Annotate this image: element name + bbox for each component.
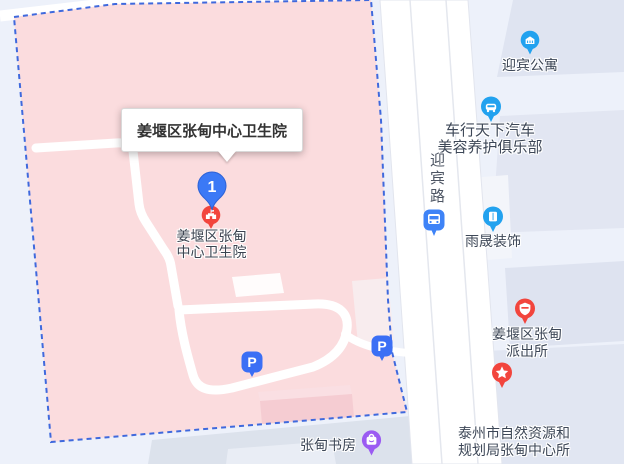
hospital-label-line1: 姜堰区张甸 [159, 228, 264, 244]
parking-pin-1[interactable]: P [241, 351, 263, 380]
bus-wheel-glyph [430, 221, 432, 223]
parking-letter: P [377, 338, 386, 354]
hospital-door-glyph [210, 216, 212, 219]
study-poi-label[interactable]: 张甸书房 [300, 437, 356, 454]
police-poi-icon[interactable] [514, 298, 536, 327]
car-club-poi-label[interactable]: 车行天下汽车 美容养护俱乐部 [437, 122, 543, 156]
place-tooltip[interactable]: 姜堰区张甸中心卫生院 [121, 108, 303, 152]
poi-text: 派出所 [487, 343, 567, 360]
road-name-label: 迎宾路 [426, 152, 447, 206]
car-wheel-glyph [487, 110, 489, 112]
apartment-poi-icon[interactable] [520, 30, 540, 57]
pin-number: 1 [208, 179, 217, 196]
poi-text: 美容养护俱乐部 [437, 139, 543, 156]
poi-text: 泰州市自然资源和 [455, 425, 573, 442]
car-window-glyph [487, 105, 494, 107]
poi-text: 姜堰区张甸 [487, 326, 567, 343]
decoration-poi-icon[interactable] [482, 206, 504, 235]
bureau-poi-icon[interactable] [491, 362, 513, 391]
result-pin-1[interactable]: 1 [197, 171, 227, 211]
decoration-poi-label[interactable]: 雨晟装饰 [465, 233, 521, 250]
hospital-poi-label[interactable]: 姜堰区张甸 中心卫生院 [159, 228, 264, 260]
tooltip-pointer [218, 151, 236, 162]
poi-text: 张甸书房 [300, 437, 356, 454]
police-poi-label[interactable]: 姜堰区张甸 派出所 [487, 326, 567, 360]
car-wheel-glyph [493, 110, 495, 112]
parking-pin-2[interactable]: P [371, 335, 393, 364]
bag-glyph [367, 437, 377, 445]
parcel-building [232, 273, 284, 297]
bus-wheel-glyph [436, 221, 438, 223]
badge-band-glyph [521, 307, 528, 309]
apartment-pillar [532, 41, 533, 43]
car-club-poi-icon[interactable] [480, 96, 502, 125]
poi-text: 规划局张甸中心所 [455, 442, 573, 459]
map-canvas[interactable]: 姜堰区张甸中心卫生院 1 姜堰区张甸 中心卫生院 迎宾路 P P [0, 0, 624, 464]
parking-letter: P [247, 354, 256, 370]
apartment-poi-label[interactable]: 迎宾公寓 [502, 57, 558, 74]
wardrobe-door-glyph [493, 213, 494, 220]
bus-stop-icon[interactable] [423, 209, 445, 239]
apartment-pillar [530, 41, 531, 43]
apartment-pillar [527, 41, 528, 43]
study-poi-icon[interactable] [361, 430, 382, 458]
poi-text: 迎宾公寓 [502, 57, 558, 74]
place-tooltip-text: 姜堰区张甸中心卫生院 [137, 120, 287, 141]
bus-window-glyph [430, 216, 439, 219]
hospital-label-line2: 中心卫生院 [159, 244, 264, 260]
poi-text: 雨晟装饰 [465, 233, 521, 250]
bureau-poi-label[interactable]: 泰州市自然资源和 规划局张甸中心所 [455, 425, 573, 459]
